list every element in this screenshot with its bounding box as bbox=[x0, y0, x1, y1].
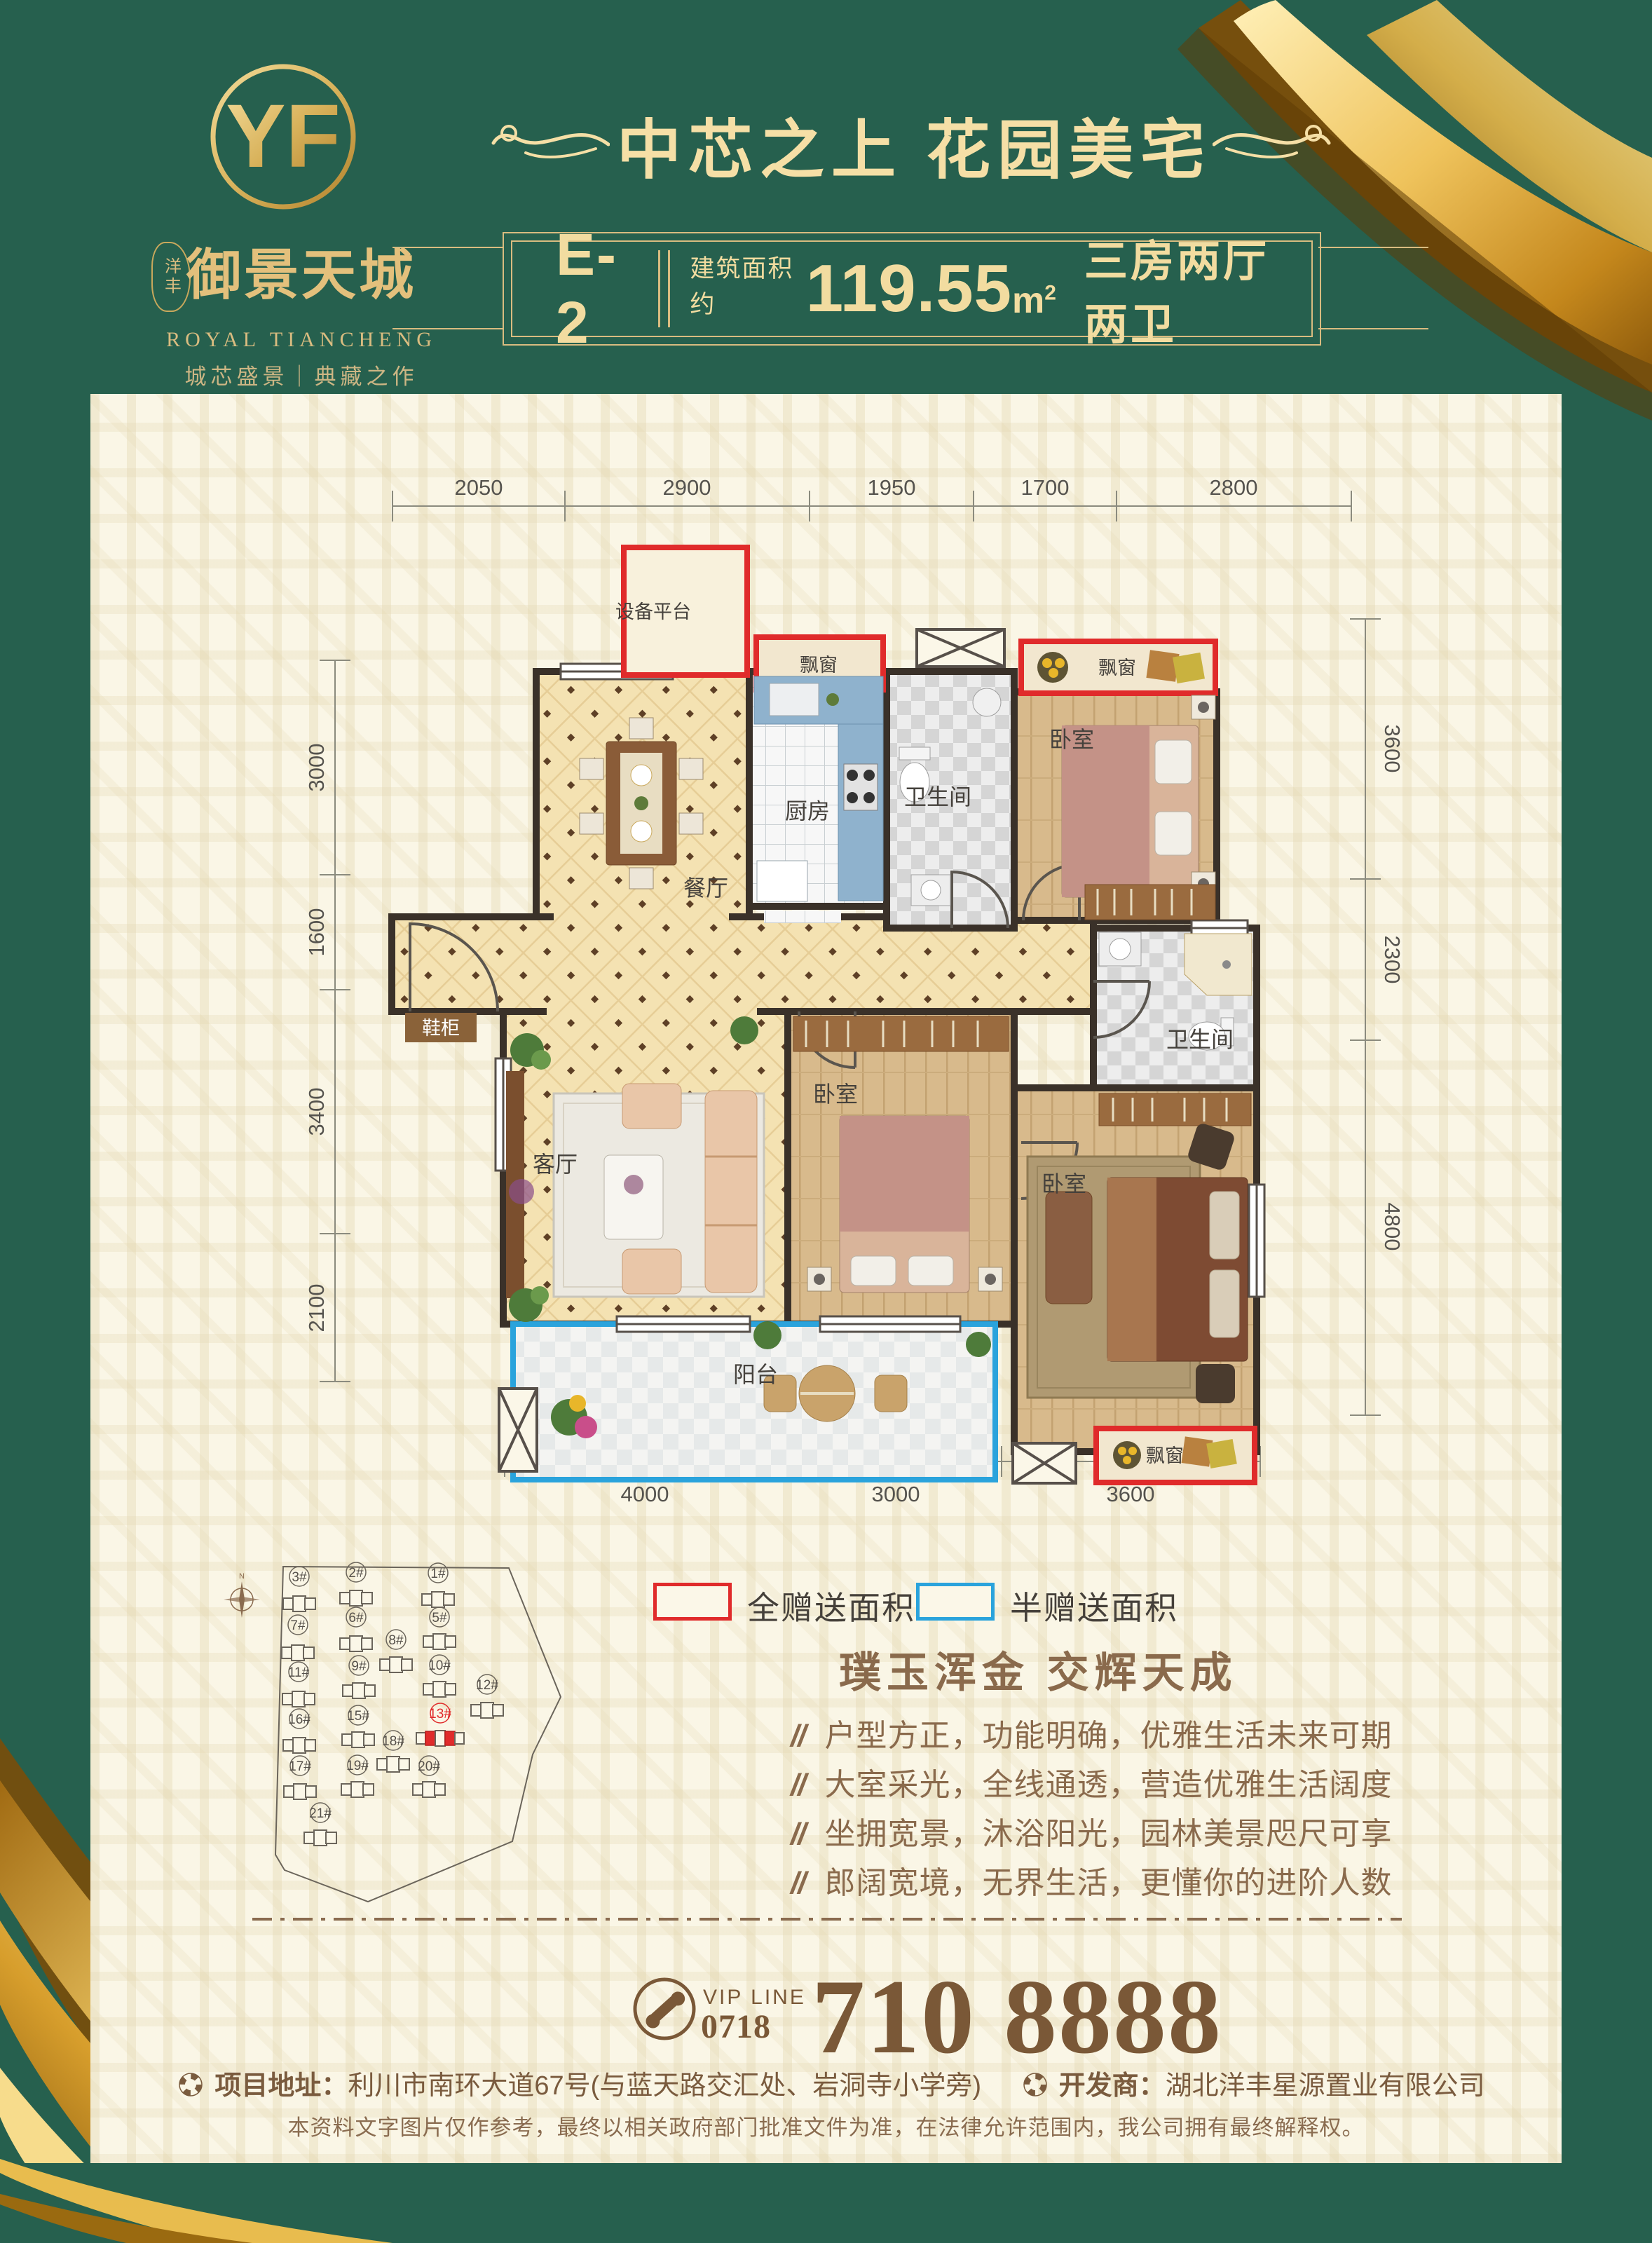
vip-area-code: 0718 bbox=[701, 2007, 771, 2046]
lifering-icon bbox=[177, 2071, 205, 2099]
svg-text:2800: 2800 bbox=[1210, 475, 1258, 500]
selling-bullet: //大室采光，全线通透，营造优雅生活阔度 bbox=[791, 1759, 1393, 1799]
svg-text:3000: 3000 bbox=[304, 744, 329, 792]
selling-bullet: //郎阔宽境，无界生活，更懂你的进阶人数 bbox=[791, 1857, 1393, 1897]
svg-text:20#: 20# bbox=[418, 1759, 440, 1774]
svg-text:1#: 1# bbox=[430, 1567, 446, 1581]
svg-text:7#: 7# bbox=[290, 1618, 306, 1633]
developer-label: 开发商： bbox=[1059, 2071, 1166, 2101]
label-bay1: 飘窗 bbox=[800, 655, 838, 676]
floor-plan: 2050 2900 1950 1700 2800 3000 1600 3400 … bbox=[294, 463, 1486, 1528]
legend-full-gift-swatch bbox=[653, 1583, 732, 1621]
svg-text:2100: 2100 bbox=[304, 1284, 329, 1332]
label-bedroom1: 卧室 bbox=[1049, 727, 1094, 752]
bullet-mark: // bbox=[791, 1817, 805, 1851]
label-living: 客厅 bbox=[533, 1152, 578, 1177]
svg-text:12#: 12# bbox=[476, 1678, 498, 1693]
svg-text:10#: 10# bbox=[428, 1658, 451, 1673]
gold-ribbon-bottom-accent bbox=[0, 2131, 392, 2243]
label-bay3: 飘窗 bbox=[1146, 1445, 1184, 1466]
brand-tagline: 城芯盛景｜典藏之作 bbox=[161, 359, 442, 390]
svg-text:5#: 5# bbox=[432, 1611, 447, 1625]
area-prefix: 建筑面积约 bbox=[690, 249, 796, 320]
address-text: 利川市南环大道67号(与蓝天路交汇处、岩洞寺小学旁) bbox=[348, 2071, 981, 2101]
developer-text: 湖北洋丰星源置业有限公司 bbox=[1166, 2071, 1485, 2101]
dining-hall-opening bbox=[554, 911, 729, 923]
selling-bullet: //户型方正，功能明确，优雅生活未来可期 bbox=[791, 1710, 1393, 1750]
svg-text:16#: 16# bbox=[288, 1712, 310, 1727]
area-value: 119.55 bbox=[806, 250, 1012, 327]
svg-text:N: N bbox=[239, 1572, 245, 1581]
label-equipment: 设备平台 bbox=[615, 601, 691, 622]
layout-desc: 三房两厅两卫 bbox=[1084, 226, 1311, 352]
svg-text:3600: 3600 bbox=[1107, 1482, 1155, 1506]
svg-text:15#: 15# bbox=[347, 1709, 369, 1724]
logo-monogram: YF bbox=[226, 86, 341, 186]
area-unit: m2 bbox=[1012, 280, 1056, 322]
poster: YF 洋丰 御景天城 ROYAL TIANCHENG 城芯盛景｜典藏之作 中芯之… bbox=[0, 0, 1652, 2243]
unit-label: E-2 bbox=[556, 221, 634, 357]
unit-box-extension-left bbox=[392, 247, 503, 248]
selling-bullet: //坐拥宽景，沐浴阳光，园林美景咫尺可享 bbox=[791, 1808, 1393, 1848]
legend-half-gift-label: 半赠送面积 bbox=[1010, 1583, 1178, 1629]
svg-text:8#: 8# bbox=[388, 1633, 404, 1648]
kitchen-opening bbox=[764, 911, 841, 923]
unit-separator bbox=[658, 250, 670, 327]
hall-living-opening bbox=[547, 1005, 757, 1018]
label-bay2: 飘窗 bbox=[1098, 657, 1136, 679]
svg-text:11#: 11# bbox=[288, 1665, 310, 1680]
brand-logo: YF bbox=[207, 60, 360, 213]
compass-icon: N bbox=[224, 1572, 260, 1618]
unit-box-extension-right-b bbox=[1318, 328, 1428, 329]
selling-title: 璞玉浑金 交辉天成 bbox=[839, 1639, 1238, 1700]
bullet-mark: // bbox=[791, 1866, 805, 1900]
page-title: 中芯之上 花园美宅 bbox=[617, 98, 1206, 191]
svg-text:3400: 3400 bbox=[304, 1088, 329, 1136]
svg-text:18#: 18# bbox=[382, 1734, 404, 1749]
svg-text:2050: 2050 bbox=[455, 475, 503, 500]
svg-text:1600: 1600 bbox=[304, 908, 329, 957]
vip-line-label: VIP LINE bbox=[703, 1986, 806, 2010]
legend-half-gift-swatch bbox=[916, 1583, 995, 1621]
unit-box: E-2 建筑面积约 119.55 m2 三房两厅两卫 bbox=[511, 240, 1313, 337]
svg-text:4000: 4000 bbox=[621, 1482, 669, 1506]
label-dining: 餐厅 bbox=[683, 875, 728, 901]
label-bedroom3: 卧室 bbox=[1042, 1171, 1086, 1197]
svg-text:1950: 1950 bbox=[868, 475, 916, 500]
svg-text:3600: 3600 bbox=[1380, 725, 1405, 773]
site-plan: N 3# 2# 1# 7# 6# 5# bbox=[203, 1539, 610, 1931]
svg-text:13#: 13# bbox=[429, 1707, 451, 1722]
flourish-left-icon bbox=[484, 112, 610, 168]
svg-text:2300: 2300 bbox=[1380, 936, 1405, 984]
label-kitchen: 厨房 bbox=[785, 798, 830, 824]
lifering-icon bbox=[1021, 2071, 1049, 2099]
label-bedroom2: 卧室 bbox=[813, 1082, 858, 1107]
footer-info-row: 项目地址：利川市南环大道67号(与蓝天路交汇处、岩洞寺小学旁) 开发商：湖北洋丰… bbox=[0, 2064, 1652, 2102]
svg-text:3000: 3000 bbox=[872, 1482, 920, 1506]
svg-text:21#: 21# bbox=[309, 1806, 332, 1821]
brand-name-en: ROYAL TIANCHENG bbox=[161, 328, 442, 352]
svg-text:17#: 17# bbox=[289, 1759, 311, 1774]
label-bath1: 卫生间 bbox=[904, 784, 971, 810]
svg-text:6#: 6# bbox=[348, 1611, 364, 1625]
svg-text:9#: 9# bbox=[351, 1659, 367, 1674]
svg-text:4800: 4800 bbox=[1380, 1203, 1405, 1251]
unit-box-extension-right bbox=[1318, 247, 1428, 248]
building-13-highlight bbox=[416, 1731, 464, 1746]
unit-box-extension-left-b bbox=[392, 328, 503, 329]
phone-icon bbox=[631, 1975, 698, 2043]
svg-text:2900: 2900 bbox=[663, 475, 711, 500]
label-bath2: 卫生间 bbox=[1166, 1027, 1234, 1052]
svg-text:19#: 19# bbox=[346, 1759, 369, 1773]
divider-dash-line bbox=[252, 1918, 1402, 1921]
label-shoe-cabinet: 鞋柜 bbox=[422, 1018, 460, 1039]
legend-full-gift-label: 全赠送面积 bbox=[747, 1583, 915, 1629]
vip-phone-number: 710 8888 bbox=[812, 1956, 1222, 2078]
flourish-right-icon bbox=[1213, 112, 1339, 168]
svg-text:3#: 3# bbox=[292, 1570, 307, 1585]
bullet-mark: // bbox=[791, 1719, 805, 1753]
site-building-labels: 3# 2# 1# 7# 6# 5# 8# 11# 9# 10# 12# 16# … bbox=[288, 1562, 498, 1822]
address-label: 项目地址： bbox=[214, 2071, 348, 2101]
brand-name: 御景天城 bbox=[175, 231, 428, 310]
bullet-mark: // bbox=[791, 1768, 805, 1802]
svg-text:1700: 1700 bbox=[1021, 475, 1070, 500]
label-balcony: 阳台 bbox=[733, 1362, 778, 1387]
svg-text:2#: 2# bbox=[348, 1566, 364, 1581]
